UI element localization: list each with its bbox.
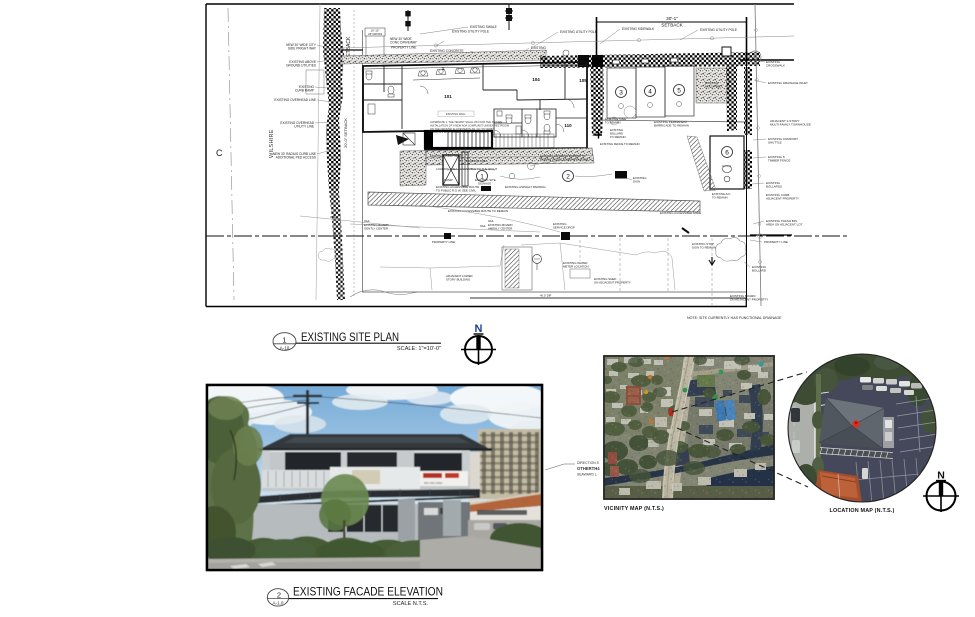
svg-text:MULCH BED: MULCH BED (705, 85, 721, 89)
svg-text:1: 1 (282, 336, 286, 345)
svg-text:METER LOCATION: METER LOCATION (563, 265, 588, 269)
svg-text:6: 6 (725, 150, 729, 157)
svg-text:OHL: OHL (480, 224, 486, 228)
svg-text:BOLLARD: BOLLARD (752, 269, 767, 273)
svg-text:N: N (937, 470, 945, 482)
svg-text:EXISTING ACCESSIBLE ROUTE TO R: EXISTING ACCESSIBLE ROUTE TO REMAIN (448, 209, 508, 213)
svg-text:EXISTING ACCESSIBLE AISLE: EXISTING ACCESSIBLE AISLE (660, 211, 701, 215)
svg-text:EXISTING FENCE TO REMAIN: EXISTING FENCE TO REMAIN (600, 142, 640, 146)
svg-text:BARRICADE TO REMAIN: BARRICADE TO REMAIN (654, 124, 689, 128)
svg-text:20'-0" SETBACK: 20'-0" SETBACK (343, 118, 348, 148)
svg-text:A-1.0: A-1.0 (273, 601, 284, 606)
svg-text:EXISTING FACADE ELEVATION: EXISTING FACADE ELEVATION (293, 584, 443, 598)
svg-text:OTHERTH4: OTHERTH4 (577, 466, 600, 471)
svg-text:EXISTING SITE PLAN: EXISTING SITE PLAN (301, 331, 399, 344)
svg-text:VICINITY MAP (N.T.S.): VICINITY MAP (N.T.S.) (604, 506, 664, 512)
svg-text:GENTLY CENTER: GENTLY CENTER (364, 227, 388, 231)
svg-text:2: 2 (566, 174, 570, 181)
svg-text:ALTERNATE 1: THE TENANT SHALL: ALTERNATE 1: THE TENANT SHALL PAY FOR TH… (430, 120, 503, 124)
svg-text:3: 3 (619, 90, 623, 97)
svg-text:ON ADJACENT PROPERTY: ON ADJACENT PROPERTY (730, 298, 768, 302)
svg-text:40.0' DIP: 40.0' DIP (540, 294, 552, 298)
svg-text:CONC DRIVEWAY: CONC DRIVEWAY (390, 41, 418, 45)
svg-text:N: N (475, 323, 483, 335)
svg-text:EXISTING CONC. WALK: EXISTING CONC. WALK (430, 154, 463, 158)
svg-text:LOADING AREA ACCESSIBLE TO THE: LOADING AREA ACCESSIBLE TO THE RIGHT (436, 167, 497, 171)
svg-text:STORY BUILDING: STORY BUILDING (446, 278, 471, 282)
svg-text:UP CROSS: UP CROSS (368, 32, 383, 36)
svg-text:SIGNAGE: SIGNAGE (478, 182, 491, 186)
svg-text:4: 4 (648, 89, 652, 96)
svg-text:SHUTTLE: SHUTTLE (768, 141, 782, 145)
svg-text:PUMP: PUMP (444, 178, 453, 182)
svg-text:SIGN TO REMAIN: SIGN TO REMAIN (692, 246, 716, 250)
svg-text:110: 110 (564, 123, 572, 128)
svg-text:TIMBER FENCE: TIMBER FENCE (768, 159, 790, 163)
svg-text:A-10: A-10 (280, 346, 290, 351)
svg-text:30'-1": 30'-1" (666, 16, 678, 21)
svg-text:PROPERTY LINE: PROPERTY LINE (432, 240, 455, 244)
svg-text:104: 104 (532, 77, 540, 82)
svg-text:CURB RAMP: CURB RAMP (295, 89, 314, 93)
svg-text:954 000 0000: 954 000 0000 (424, 481, 443, 485)
svg-text:CROSSWALK: CROSSWALK (766, 64, 785, 68)
svg-text:UTILITY LINE: UTILITY LINE (294, 125, 314, 129)
svg-text:EXISTING OVERHEAD LINE: EXISTING OVERHEAD LINE (274, 98, 316, 102)
svg-text:LOCATION MAP (N.T.S.): LOCATION MAP (N.T.S.) (829, 508, 894, 514)
svg-text:ON ADJACENT PROPERTY: ON ADJACENT PROPERTY (594, 281, 631, 285)
svg-text:ADDITIONAL PED ACCESS: ADDITIONAL PED ACCESS (276, 156, 316, 160)
svg-text:INSTALLATION OF A NEW ADA COMP: INSTALLATION OF A NEW ADA COMPLIANT UNIS… (430, 123, 509, 127)
svg-text:GROUND UTILITIES: GROUND UTILITIES (286, 64, 316, 68)
svg-text:SCALE: 1"=10'-0": SCALE: 1"=10'-0" (397, 346, 441, 352)
svg-text:EXISTING UTILITY POLE: EXISTING UTILITY POLE (700, 28, 737, 32)
svg-text:101: 101 (444, 94, 452, 99)
svg-text:TO REMAIN: TO REMAIN (712, 196, 728, 200)
svg-text:TO REMAIN: TO REMAIN (605, 121, 621, 125)
svg-text:BOLLARDS: BOLLARDS (766, 185, 782, 189)
svg-text:EXISTING UTILITY POLE: EXISTING UTILITY POLE (560, 30, 597, 34)
svg-text:OHL: OHL (330, 215, 336, 219)
svg-text:105: 105 (579, 78, 587, 83)
svg-text:TO REMAIN: TO REMAIN (610, 135, 626, 139)
svg-text:EXISTING ASPHALT PARKING: EXISTING ASPHALT PARKING (505, 185, 546, 189)
svg-text:AREA ON ADJACENT LOT: AREA ON ADJACENT LOT (766, 223, 803, 227)
svg-text:PROPERTY LINE: PROPERTY LINE (764, 240, 788, 244)
svg-text:C: C (216, 148, 223, 158)
svg-text:EXISTING DRAINAGE INLET: EXISTING DRAINAGE INLET (768, 81, 808, 85)
svg-text:SIGN: SIGN (633, 180, 640, 184)
svg-text:EXISTING WALL: EXISTING WALL (446, 112, 466, 116)
svg-text:NOTE: SITE CURRENTLY HAS FUNCT: NOTE: SITE CURRENTLY HAS FUNCTIONAL DRAI… (687, 316, 782, 320)
svg-text:EXISTING UTILITY POLE: EXISTING UTILITY POLE (452, 30, 489, 34)
svg-text:ADJACENT PROPERTY: ADJACENT PROPERTY (766, 197, 799, 201)
svg-text:SCALE N.T.S.: SCALE N.T.S. (393, 601, 429, 607)
svg-text:SETBACK: SETBACK (661, 23, 683, 28)
svg-text:SIDE PRIGHT WAY: SIDE PRIGHT WAY (288, 47, 317, 51)
svg-text:AMENLY CENTER: AMENLY CENTER (488, 227, 512, 231)
svg-text:PROPERTY LINE: PROPERTY LINE (391, 46, 416, 50)
svg-text:SEAWARD L: SEAWARD L (577, 473, 597, 477)
svg-text:SERVICE DROP: SERVICE DROP (553, 226, 575, 230)
svg-text:2: 2 (277, 591, 281, 600)
svg-text:EXISTING SIDEWALK: EXISTING SIDEWALK (622, 27, 655, 31)
svg-text:LOADING AREA: LOADING AREA (466, 159, 488, 163)
svg-text:MULTI-FAMILY TOWNHOUSE: MULTI-FAMILY TOWNHOUSE (770, 123, 811, 127)
svg-text:REMAIN (RIGHT IN RIGHT OUT ONL: REMAIN (RIGHT IN RIGHT OUT ONLY) (540, 158, 592, 162)
svg-text:5: 5 (677, 88, 681, 95)
svg-text:TO PUBLIC R.O.W. SEE CIVIL: TO PUBLIC R.O.W. SEE CIVIL (436, 189, 476, 193)
svg-text:DIRECTION S: DIRECTION S (577, 461, 600, 465)
svg-text:EXISTING SWALE: EXISTING SWALE (470, 25, 497, 29)
